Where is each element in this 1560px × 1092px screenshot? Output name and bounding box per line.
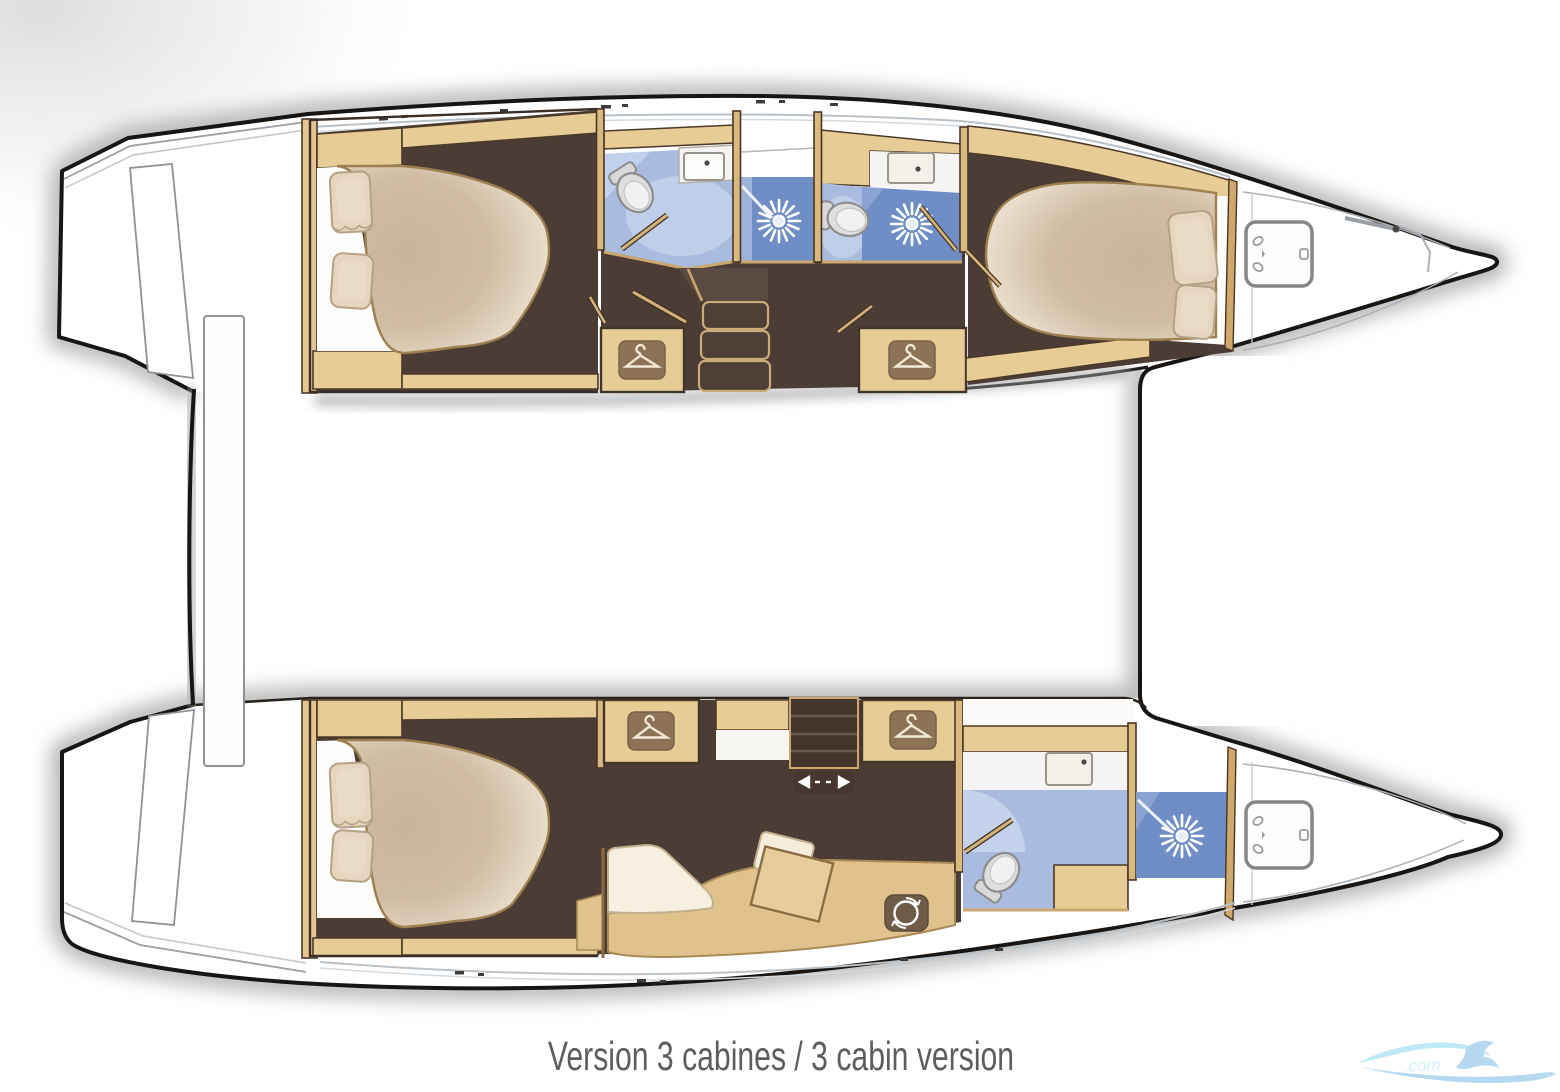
svg-text:.com: .com [1403, 1055, 1441, 1076]
svg-text:Version 3 cabines / 3 cabin ve: Version 3 cabines / 3 cabin version [548, 1034, 1014, 1079]
